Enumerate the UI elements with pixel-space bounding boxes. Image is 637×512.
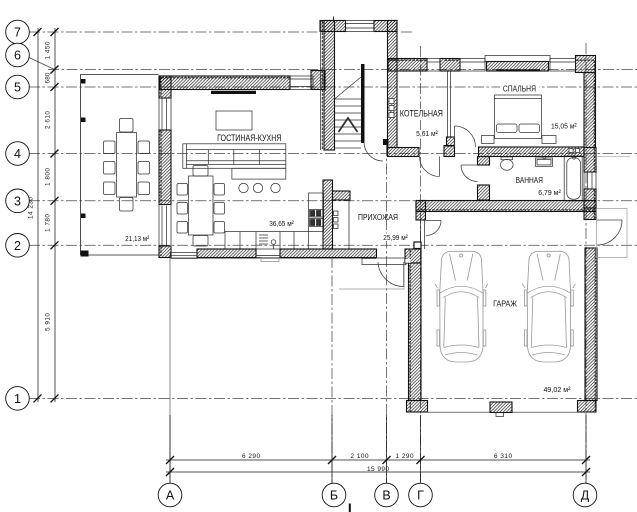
svg-text:15 990: 15 990 (367, 466, 389, 473)
svg-text:4: 4 (14, 147, 21, 161)
svg-text:680: 680 (45, 72, 52, 83)
svg-text:ГОСТИНАЯ-КУХНЯ: ГОСТИНАЯ-КУХНЯ (217, 132, 281, 143)
svg-text:СПАЛЬНЯ: СПАЛЬНЯ (503, 84, 536, 94)
svg-text:ПРИХОЖАЯ: ПРИХОЖАЯ (358, 212, 398, 222)
svg-text:6,79 м²: 6,79 м² (538, 188, 561, 197)
svg-text:7: 7 (14, 26, 21, 40)
svg-text:21,13 м²: 21,13 м² (125, 235, 150, 243)
svg-text:36,65 м²: 36,65 м² (269, 221, 294, 229)
svg-text:2 610: 2 610 (45, 111, 52, 129)
svg-text:5 910: 5 910 (45, 313, 52, 331)
svg-text:1 450: 1 450 (45, 41, 52, 59)
svg-text:2 100: 2 100 (351, 453, 369, 460)
svg-text:Б: Б (330, 489, 338, 503)
svg-text:15,05 м²: 15,05 м² (551, 121, 577, 131)
svg-text:А: А (166, 489, 175, 503)
svg-text:6 290: 6 290 (242, 453, 260, 460)
svg-text:3: 3 (14, 194, 21, 208)
svg-text:25,99 м²: 25,99 м² (383, 234, 408, 242)
svg-text:1: 1 (14, 392, 21, 406)
svg-text:Д: Д (581, 489, 590, 503)
svg-text:1 800: 1 800 (45, 168, 52, 186)
svg-text:КОТЕЛЬНАЯ: КОТЕЛЬНАЯ (400, 108, 443, 118)
svg-text:5,61 м²: 5,61 м² (416, 130, 438, 138)
svg-text:ВАННАЯ: ВАННАЯ (516, 175, 543, 185)
svg-text:1 780: 1 780 (45, 214, 52, 232)
svg-text:В: В (382, 489, 390, 503)
svg-text:Г: Г (417, 489, 424, 503)
svg-text:1 290: 1 290 (396, 453, 414, 460)
svg-text:2: 2 (14, 239, 21, 253)
svg-text:6: 6 (14, 49, 21, 63)
svg-text:5: 5 (14, 81, 21, 95)
svg-text:ГАРАЖ: ГАРАЖ (493, 299, 518, 309)
svg-text:6 310: 6 310 (494, 453, 512, 460)
svg-text:49,02 м²: 49,02 м² (543, 385, 571, 394)
